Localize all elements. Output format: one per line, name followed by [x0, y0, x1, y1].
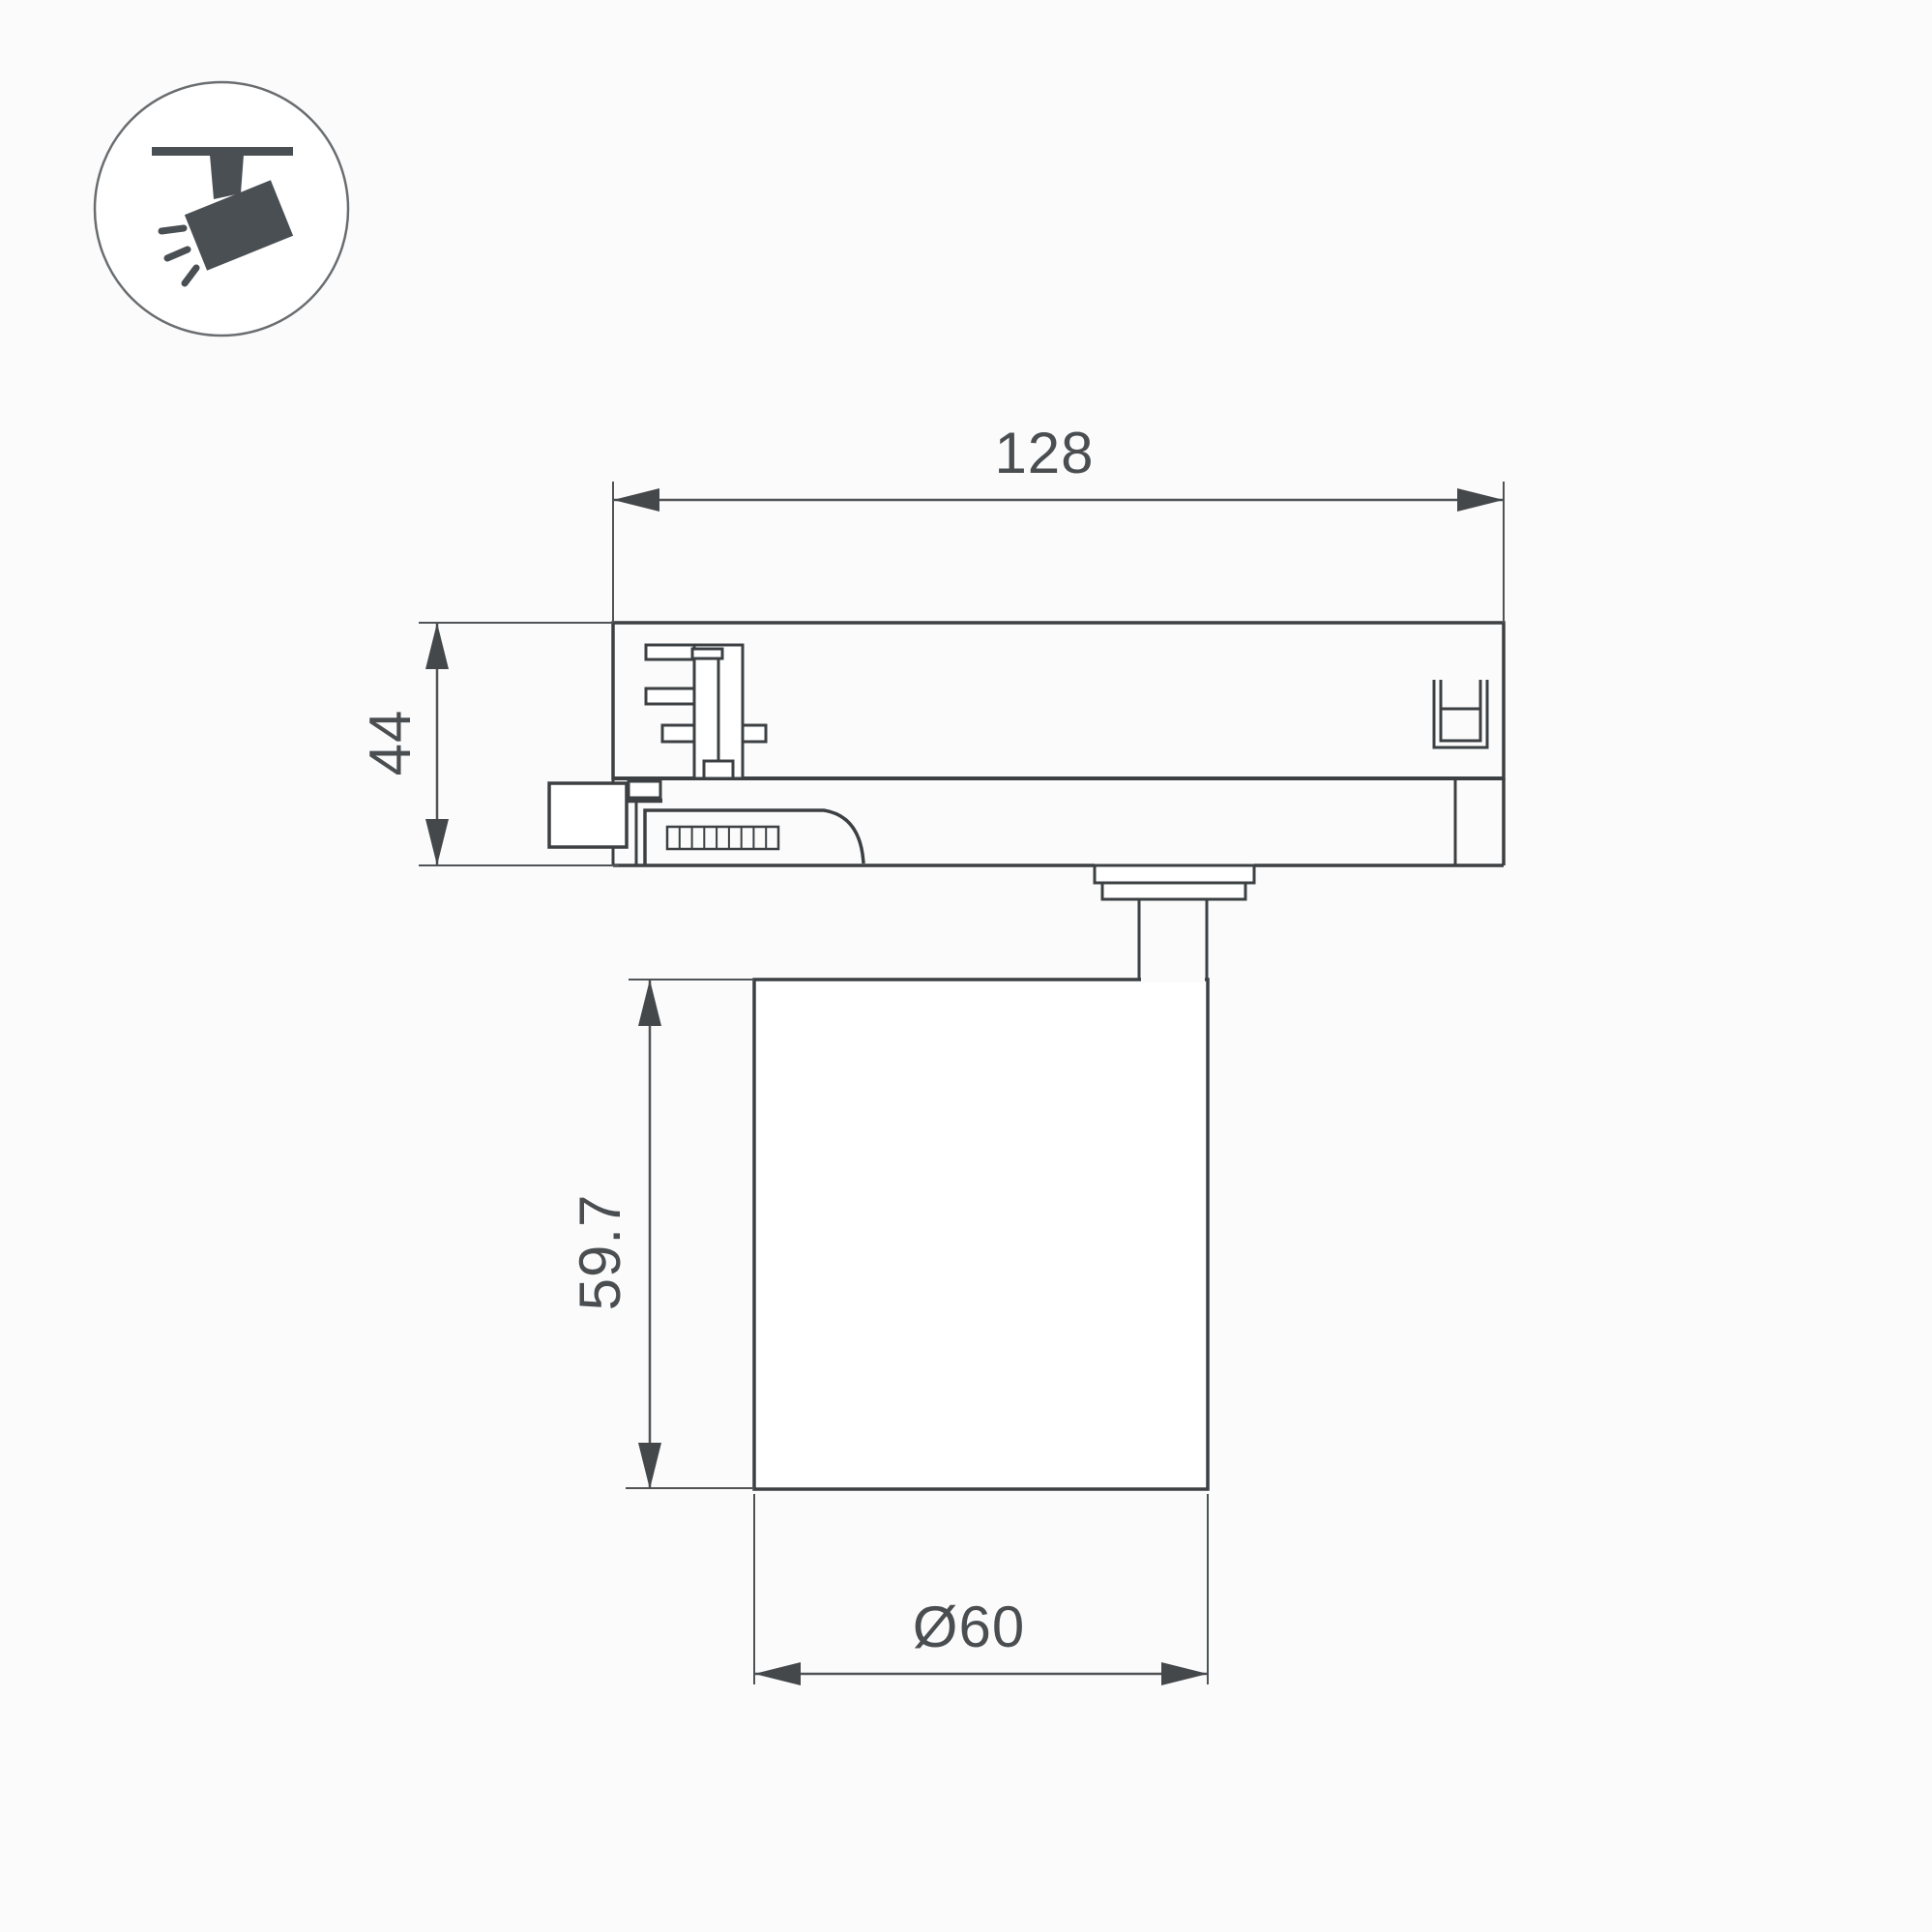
arrowhead-right [1161, 1662, 1208, 1685]
ribbed-grip [667, 827, 778, 849]
arrowhead-top [638, 980, 661, 1026]
arrowhead-top [425, 623, 449, 669]
dim-label-width: 128 [994, 421, 1094, 485]
adapter-outline [613, 623, 1504, 865]
slide-lock-element [636, 801, 864, 865]
stem-clear [1141, 897, 1205, 982]
arrowhead-left [613, 488, 659, 512]
arrowhead-bottom [425, 819, 449, 865]
prong-tab-mid [646, 688, 694, 704]
prong-foot [704, 761, 733, 778]
lamp-assembly [754, 865, 1254, 1489]
technical-drawing-page: 128 44 59.7 Ø60 [0, 0, 1932, 1932]
dimension-width-128: 128 [613, 421, 1504, 623]
prong-tab-top [646, 645, 694, 659]
dimension-body-height-59-7: 59.7 [568, 980, 754, 1489]
prong-tab-right [743, 725, 766, 742]
prong-tab-low [662, 725, 694, 742]
contact-prong-assembly [646, 645, 766, 778]
track-spotlight-icon [95, 82, 348, 336]
arrowhead-left [754, 1662, 801, 1685]
clamp-lever-box [549, 783, 627, 847]
u-bracket-detail [1434, 680, 1487, 747]
adapter-body [613, 623, 1504, 778]
arrowhead-right [1457, 488, 1504, 512]
clamp-step-box [629, 781, 660, 798]
dimension-diameter-60: Ø60 [754, 1494, 1208, 1685]
dim-label-body-height: 59.7 [568, 1194, 632, 1311]
track-light-dimension-drawing: 128 44 59.7 Ø60 [0, 0, 1932, 1932]
lamp-cylinder [754, 980, 1208, 1489]
mount-disc-lower [1102, 883, 1245, 899]
icon-track-bar [152, 147, 293, 156]
prong-cap [692, 649, 722, 659]
dim-label-diameter: Ø60 [913, 1595, 1025, 1659]
dim-label-height: 44 [358, 710, 423, 776]
icon-mount-stem [210, 155, 244, 199]
arrowhead-bottom [638, 1443, 661, 1489]
mount-disc-upper [1095, 865, 1254, 883]
